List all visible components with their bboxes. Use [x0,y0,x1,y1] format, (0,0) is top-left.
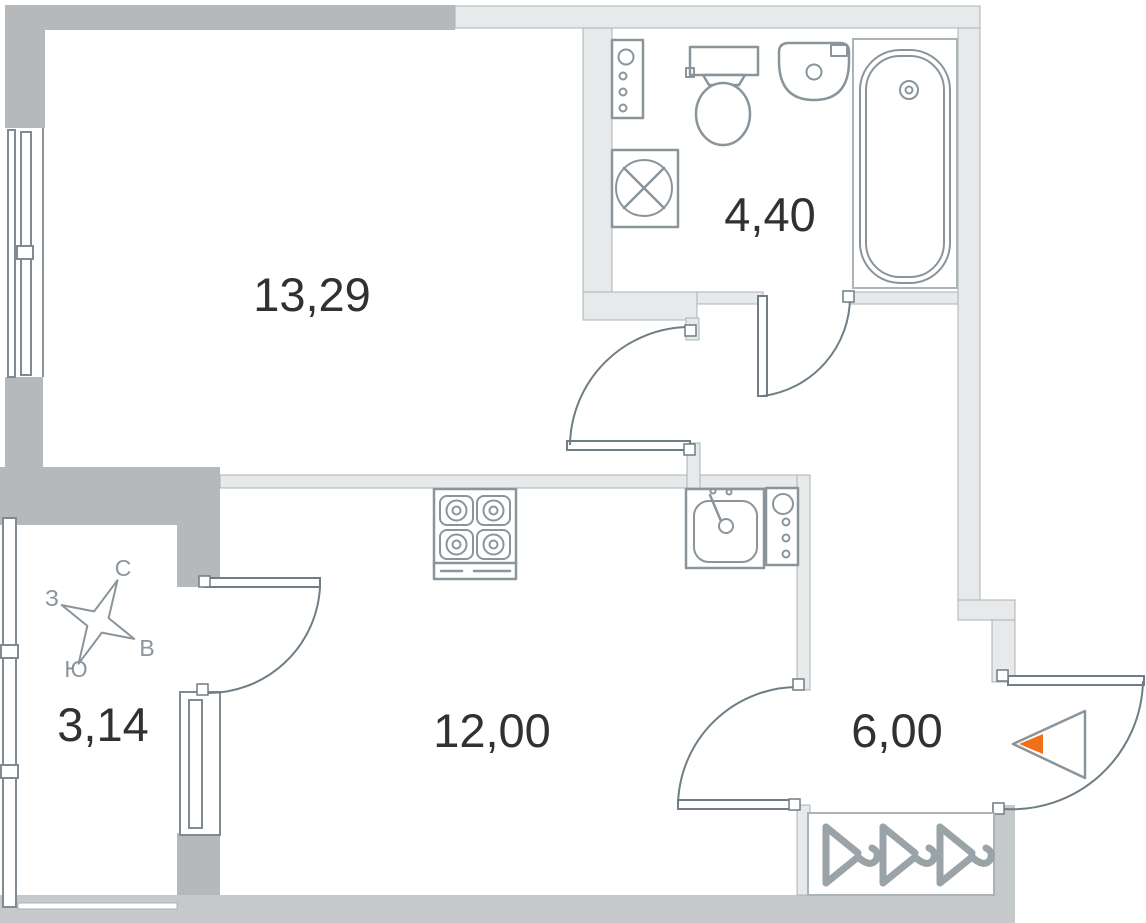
balcony-mullion-2 [1,765,18,778]
balcony-door-leaf [205,578,320,587]
washing-machine-icon [612,150,678,227]
door-frame-notch [843,291,854,302]
stove-icon [434,489,516,579]
wall-left-mid [5,377,43,467]
bathtub-icon [853,39,957,288]
wardrobe-box [808,813,994,895]
basin-body [779,43,849,100]
toilet-bowl [696,83,750,145]
balcony-door [197,576,320,695]
kitchen-living-area-label: 12,00 [433,704,551,757]
kitchen-door-arc [678,687,798,805]
door-frame-notch [199,576,210,587]
compass-rose: С З В Ю [42,555,154,682]
wall-bathroom-bottom-mid [697,292,763,304]
kitchen-riser-shaft [766,488,798,565]
wall-right [958,28,980,620]
living-room-window [8,128,43,377]
balcony-glass [3,518,16,907]
balcony-window-block [180,692,220,835]
living-door-arc [570,327,690,445]
door-frame-notch [997,670,1008,681]
door-frame-notch [685,325,696,336]
toilet-tank [690,47,758,75]
living-room-door [567,325,696,455]
bathroom-door [758,291,854,396]
compass-south-label: Ю [64,656,87,682]
balcony-door-arc [206,587,320,693]
bathroom-area-label: 4,40 [724,188,815,241]
bathroom-door-leaf [758,296,767,396]
door-frame-notch [793,679,804,690]
door-frame-notch [789,799,800,810]
wash-basin-icon [779,43,849,100]
kitchen-door [678,679,804,810]
wall-left-upper [5,5,45,128]
bathroom-door-arc [763,297,850,396]
bathroom-riser-shaft [612,40,643,118]
door-frame-notch [684,444,695,455]
compass-east-label: В [139,635,154,661]
wardrobe-icon [808,813,994,895]
wall-living-bathroom [583,28,612,320]
kitchen-sink-icon [686,489,764,569]
wall-top-dark [8,5,455,30]
entrance-door-leaf [1008,676,1144,685]
window-transom [17,246,33,259]
wall-kitchen-top [220,475,810,488]
wall-closet-right [992,805,1015,923]
balcony-window-glazing [189,700,202,828]
compass-star [42,563,153,680]
wall-bathroom-bottom-left [583,292,697,320]
balcony-area-label: 3,14 [57,698,148,751]
compass-north-label: С [115,555,132,581]
floor-plan: С З В Ю 13,29 4,40 12,00 6,00 3,14 [0,0,1146,923]
wall-top-light [455,6,980,28]
balcony-mullion-1 [1,645,18,658]
stove-body [434,489,516,565]
living-room-area-label: 13,29 [253,268,371,321]
window-outer-frame [8,130,15,377]
wall-bathroom-bottom-right [850,292,958,304]
living-door-leaf [567,441,690,450]
entrance-arrow-icon [1013,711,1085,778]
toilet-icon [686,47,758,145]
balcony-floor-edge [18,903,177,909]
wall-right-step [958,600,1015,620]
compass-west-label: З [45,585,59,611]
hallway-area-label: 6,00 [851,704,942,757]
wall-balcony-top [0,467,220,525]
door-frame-notch [197,684,208,695]
riser-box [612,40,643,118]
kitchen-door-leaf [678,800,798,809]
